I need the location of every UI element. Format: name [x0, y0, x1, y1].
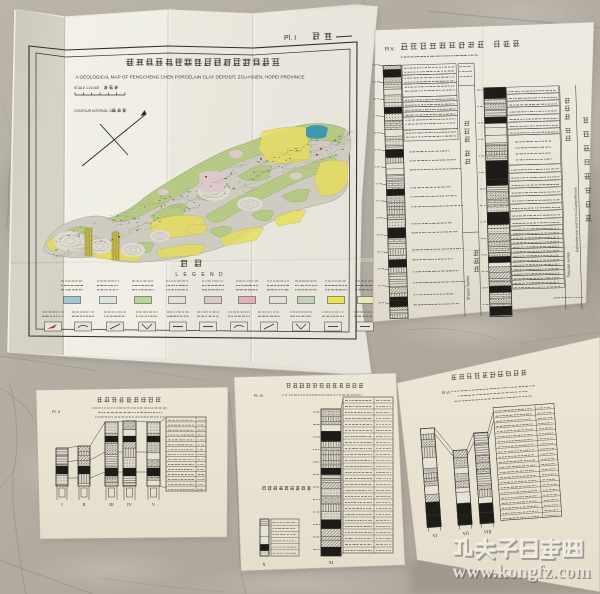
svg-text:VIII: VIII [484, 529, 493, 535]
svg-text:XI: XI [329, 560, 334, 565]
svg-text:CONTOUR INTERVAL 10m: CONTOUR INTERVAL 10m [74, 109, 116, 113]
svg-text:III: III [109, 502, 114, 507]
svg-text:SCALE 1:10,000: SCALE 1:10,000 [74, 86, 99, 90]
svg-text:II: II [83, 502, 86, 507]
svg-text:www.kongfz.com: www.kongfz.com [453, 562, 591, 583]
svg-text:Shansi Series: Shansi Series [465, 276, 471, 301]
svg-text:Pl.VI: Pl.VI [442, 391, 450, 396]
svg-text:L E G E N D: L E G E N D [175, 272, 224, 278]
svg-text:Pl. II: Pl. II [52, 409, 60, 414]
svg-text:IV: IV [127, 502, 132, 507]
svg-text:Pl.V.: Pl.V. [385, 46, 395, 52]
svg-text:A GEOLOGICAL MAP OF PENGCHENG: A GEOLOGICAL MAP OF PENGCHENG CHEN PORCE… [75, 75, 304, 80]
svg-text:Pl. I: Pl. I [284, 35, 296, 42]
svg-text:VII: VII [462, 531, 469, 536]
svg-text:VI: VI [432, 533, 438, 538]
svg-text:Taiyuan series: Taiyuan series [565, 252, 571, 278]
svg-text:Pl. III: Pl. III [254, 394, 263, 398]
